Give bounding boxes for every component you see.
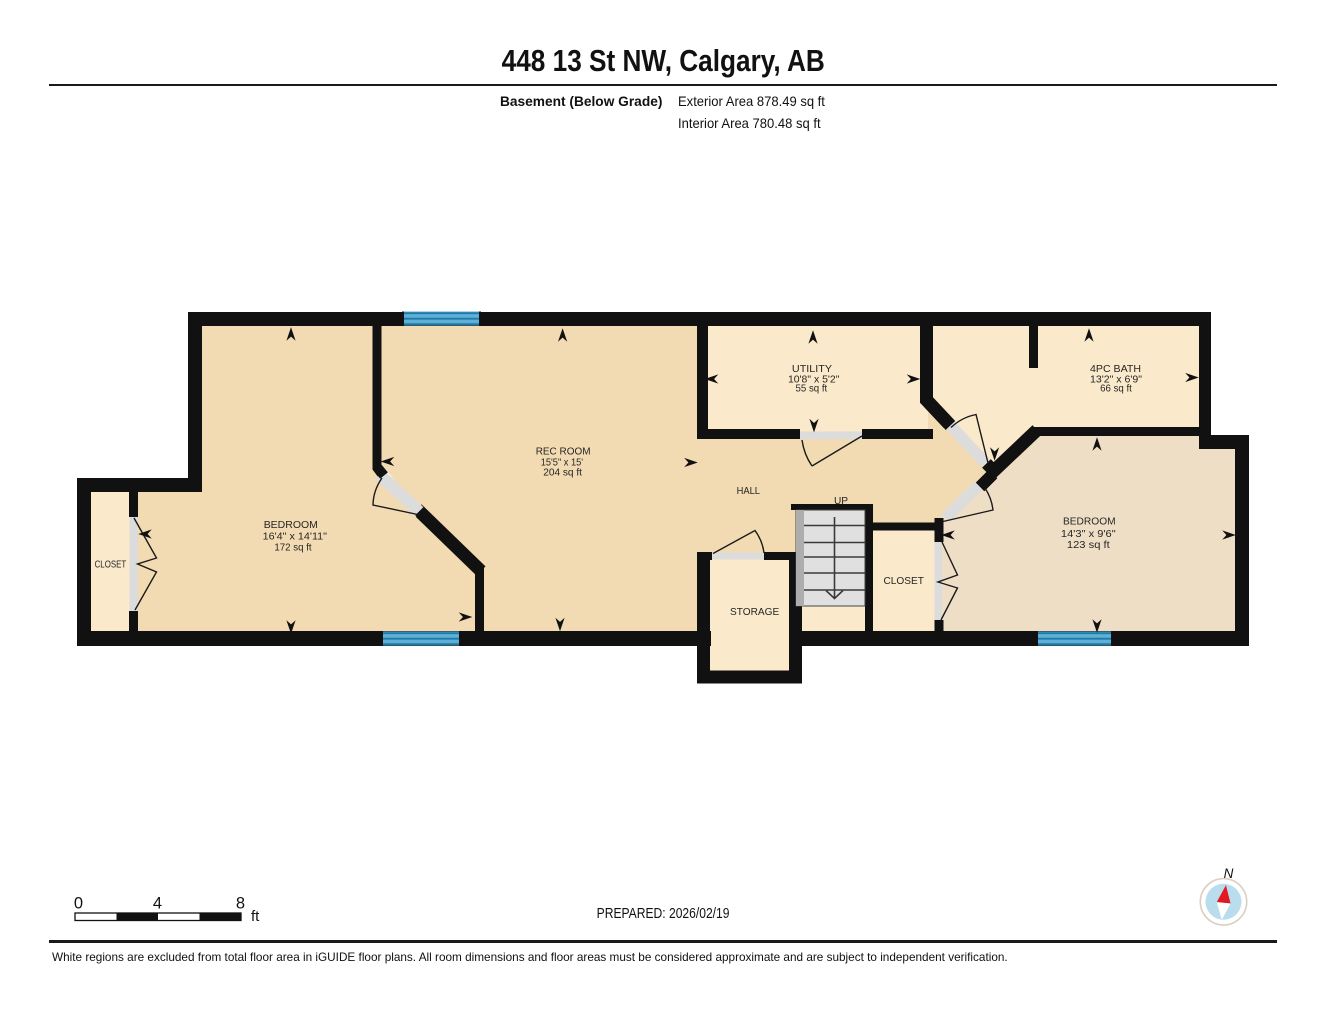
svg-text:55 sq ft: 55 sq ft bbox=[796, 383, 828, 395]
svg-text:BEDROOM: BEDROOM bbox=[1063, 516, 1116, 528]
svg-text:UP: UP bbox=[834, 495, 848, 507]
svg-text:123 sq ft: 123 sq ft bbox=[1067, 539, 1110, 551]
svg-text:66 sq ft: 66 sq ft bbox=[1100, 383, 1132, 395]
svg-text:CLOSET: CLOSET bbox=[883, 575, 924, 587]
svg-text:172 sq ft: 172 sq ft bbox=[274, 541, 311, 553]
svg-text:CLOSET: CLOSET bbox=[95, 560, 127, 571]
svg-text:STORAGE: STORAGE bbox=[730, 606, 779, 618]
svg-text:BEDROOM: BEDROOM bbox=[264, 519, 318, 531]
svg-text:204 sq ft: 204 sq ft bbox=[543, 466, 582, 478]
svg-text:N: N bbox=[1224, 866, 1234, 881]
svg-text:HALL: HALL bbox=[737, 485, 761, 497]
